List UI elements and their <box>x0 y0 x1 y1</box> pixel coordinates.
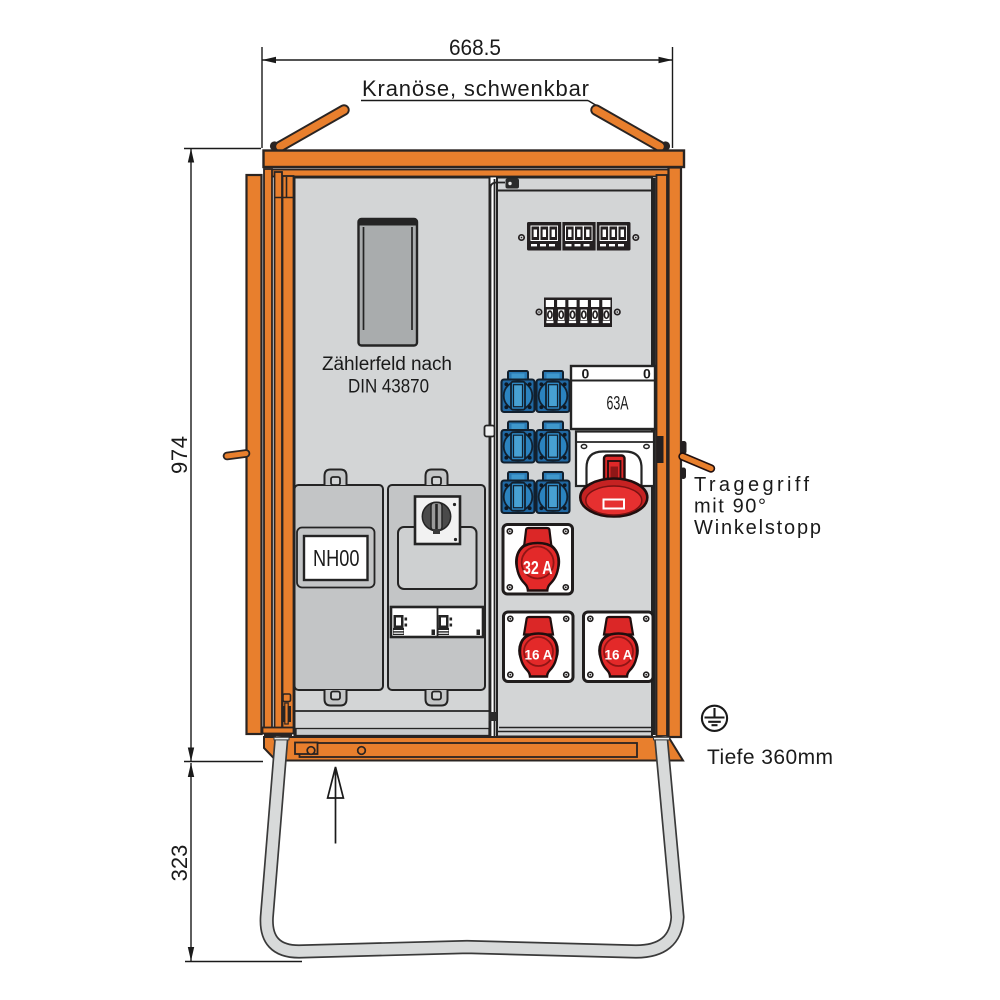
svg-text:63A: 63A <box>607 394 629 415</box>
svg-text:32 A: 32 A <box>523 557 553 578</box>
svg-text:mit 90°: mit 90° <box>694 496 766 518</box>
svg-text:974: 974 <box>167 436 192 474</box>
svg-text:Kranöse, schwenkbar: Kranöse, schwenkbar <box>362 76 589 101</box>
svg-text:NH00: NH00 <box>313 545 360 571</box>
svg-text:DIN 43870: DIN 43870 <box>348 377 429 398</box>
svg-text:0: 0 <box>643 366 651 382</box>
svg-text:0: 0 <box>582 366 590 382</box>
svg-text:323: 323 <box>167 845 192 882</box>
svg-text:Tiefe 360mm: Tiefe 360mm <box>707 746 833 769</box>
svg-text:668.5: 668.5 <box>449 35 501 60</box>
svg-text:Zählerfeld nach: Zählerfeld nach <box>322 354 452 375</box>
